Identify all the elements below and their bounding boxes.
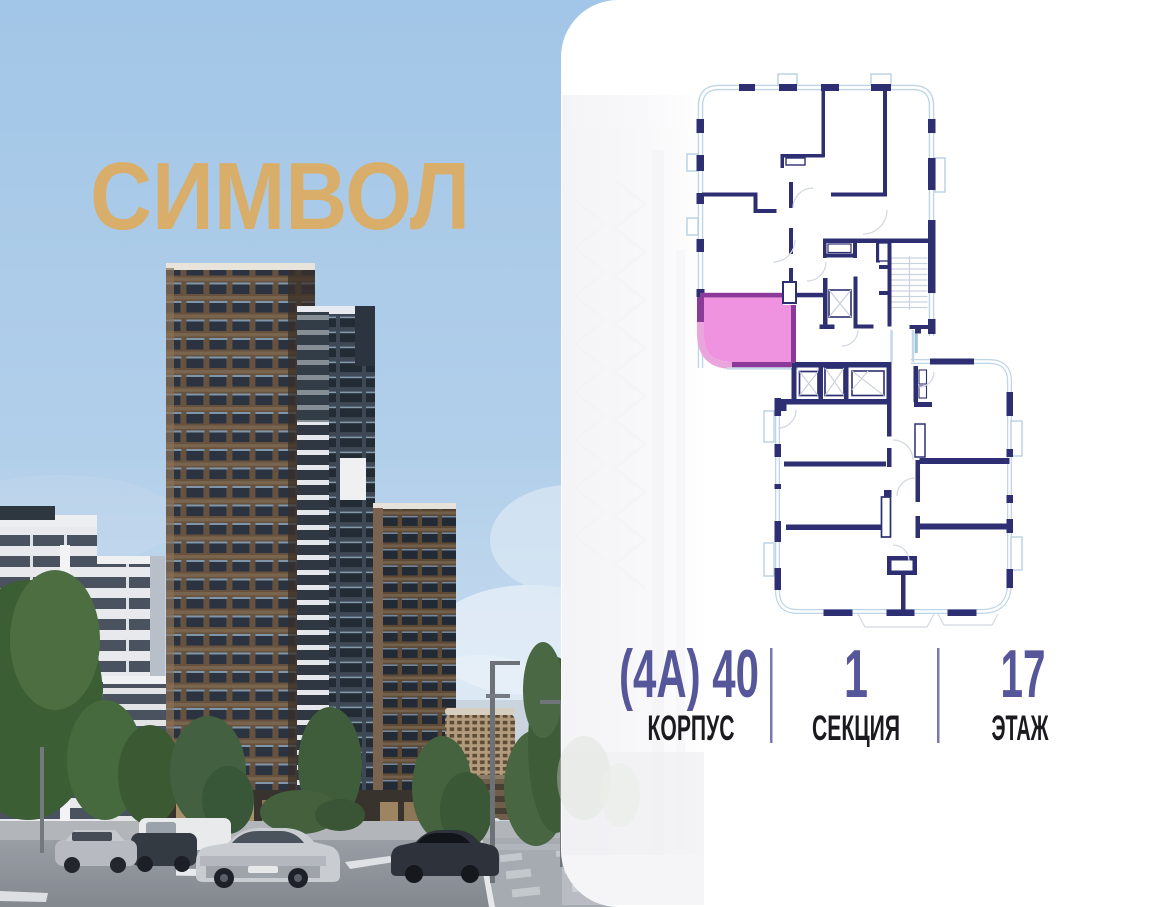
svg-text:17: 17 (1001, 636, 1046, 712)
svg-text:СЕКЦИЯ: СЕКЦИЯ (812, 709, 900, 748)
svg-text:(4А) 40: (4А) 40 (619, 636, 759, 712)
svg-text:1: 1 (844, 636, 868, 712)
svg-text:ЭТАЖ: ЭТАЖ (992, 709, 1049, 748)
svg-text:СИМВОЛ: СИМВОЛ (90, 143, 470, 250)
svg-text:КОРПУС: КОРПУС (648, 709, 735, 748)
